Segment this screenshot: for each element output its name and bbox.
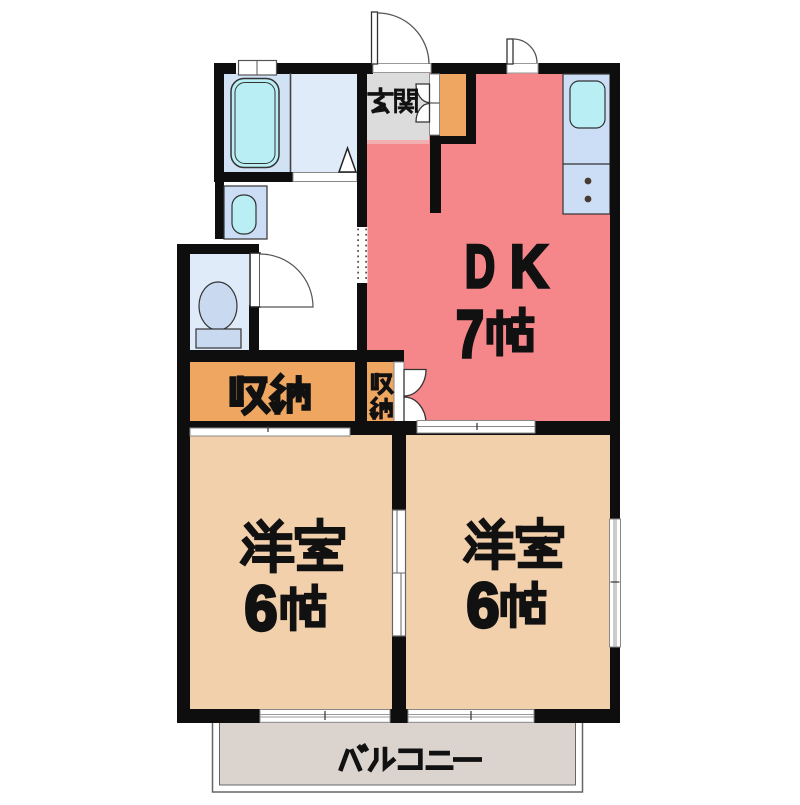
svg-text:6: 6: [467, 571, 500, 641]
svg-text:D: D: [465, 233, 495, 300]
svg-text:K: K: [510, 233, 548, 300]
svg-text:7: 7: [456, 297, 484, 372]
svg-text:6: 6: [245, 574, 278, 644]
